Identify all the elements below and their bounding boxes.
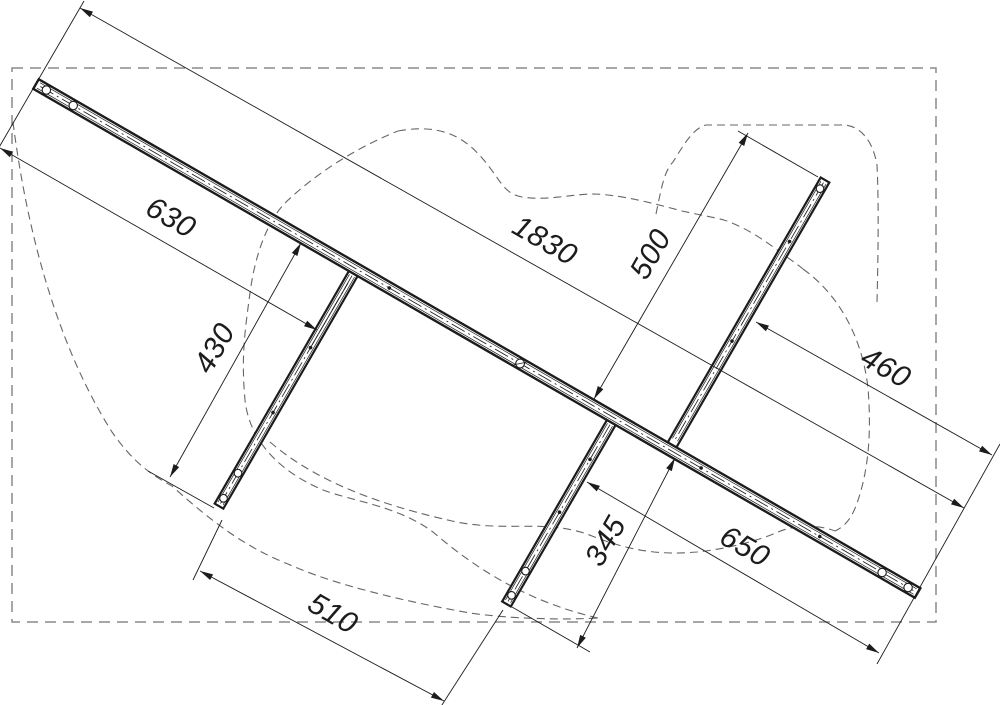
dim-label-1830: 1830 bbox=[507, 209, 583, 272]
dim-label-345: 345 bbox=[579, 511, 633, 572]
main-rail bbox=[33, 79, 920, 598]
extension-line bbox=[440, 610, 503, 705]
drawing-page: 630 1830 500 430 460 510 345 650 bbox=[0, 0, 1000, 705]
extension-line bbox=[877, 444, 1000, 664]
silhouette-top-wave bbox=[398, 129, 803, 269]
dimension-line-1830 bbox=[80, 8, 964, 508]
dimension-line-630 bbox=[0, 148, 317, 330]
silhouette-right-bulge bbox=[803, 269, 869, 531]
cross-rail-right bbox=[668, 178, 830, 448]
extension-line bbox=[148, 471, 214, 508]
extension-line bbox=[738, 131, 818, 177]
cross-rail-left bbox=[215, 268, 360, 509]
dim-label-500: 500 bbox=[624, 224, 678, 285]
extension-line bbox=[193, 520, 222, 580]
dim-label-650: 650 bbox=[714, 520, 775, 574]
technical-drawing-canvas: 630 1830 500 430 460 510 345 650 bbox=[0, 0, 1000, 705]
dim-label-630: 630 bbox=[140, 191, 201, 245]
dim-label-430: 430 bbox=[188, 318, 242, 379]
rail-centerline bbox=[40, 87, 913, 591]
extension-line bbox=[0, 1, 84, 156]
silhouette-left-arc bbox=[13, 122, 598, 619]
extension-line bbox=[312, 283, 348, 345]
cross-rail-middle bbox=[502, 417, 617, 606]
dim-label-460: 460 bbox=[855, 341, 916, 395]
dimension-line-650 bbox=[587, 482, 879, 653]
dim-label-510: 510 bbox=[302, 587, 363, 641]
